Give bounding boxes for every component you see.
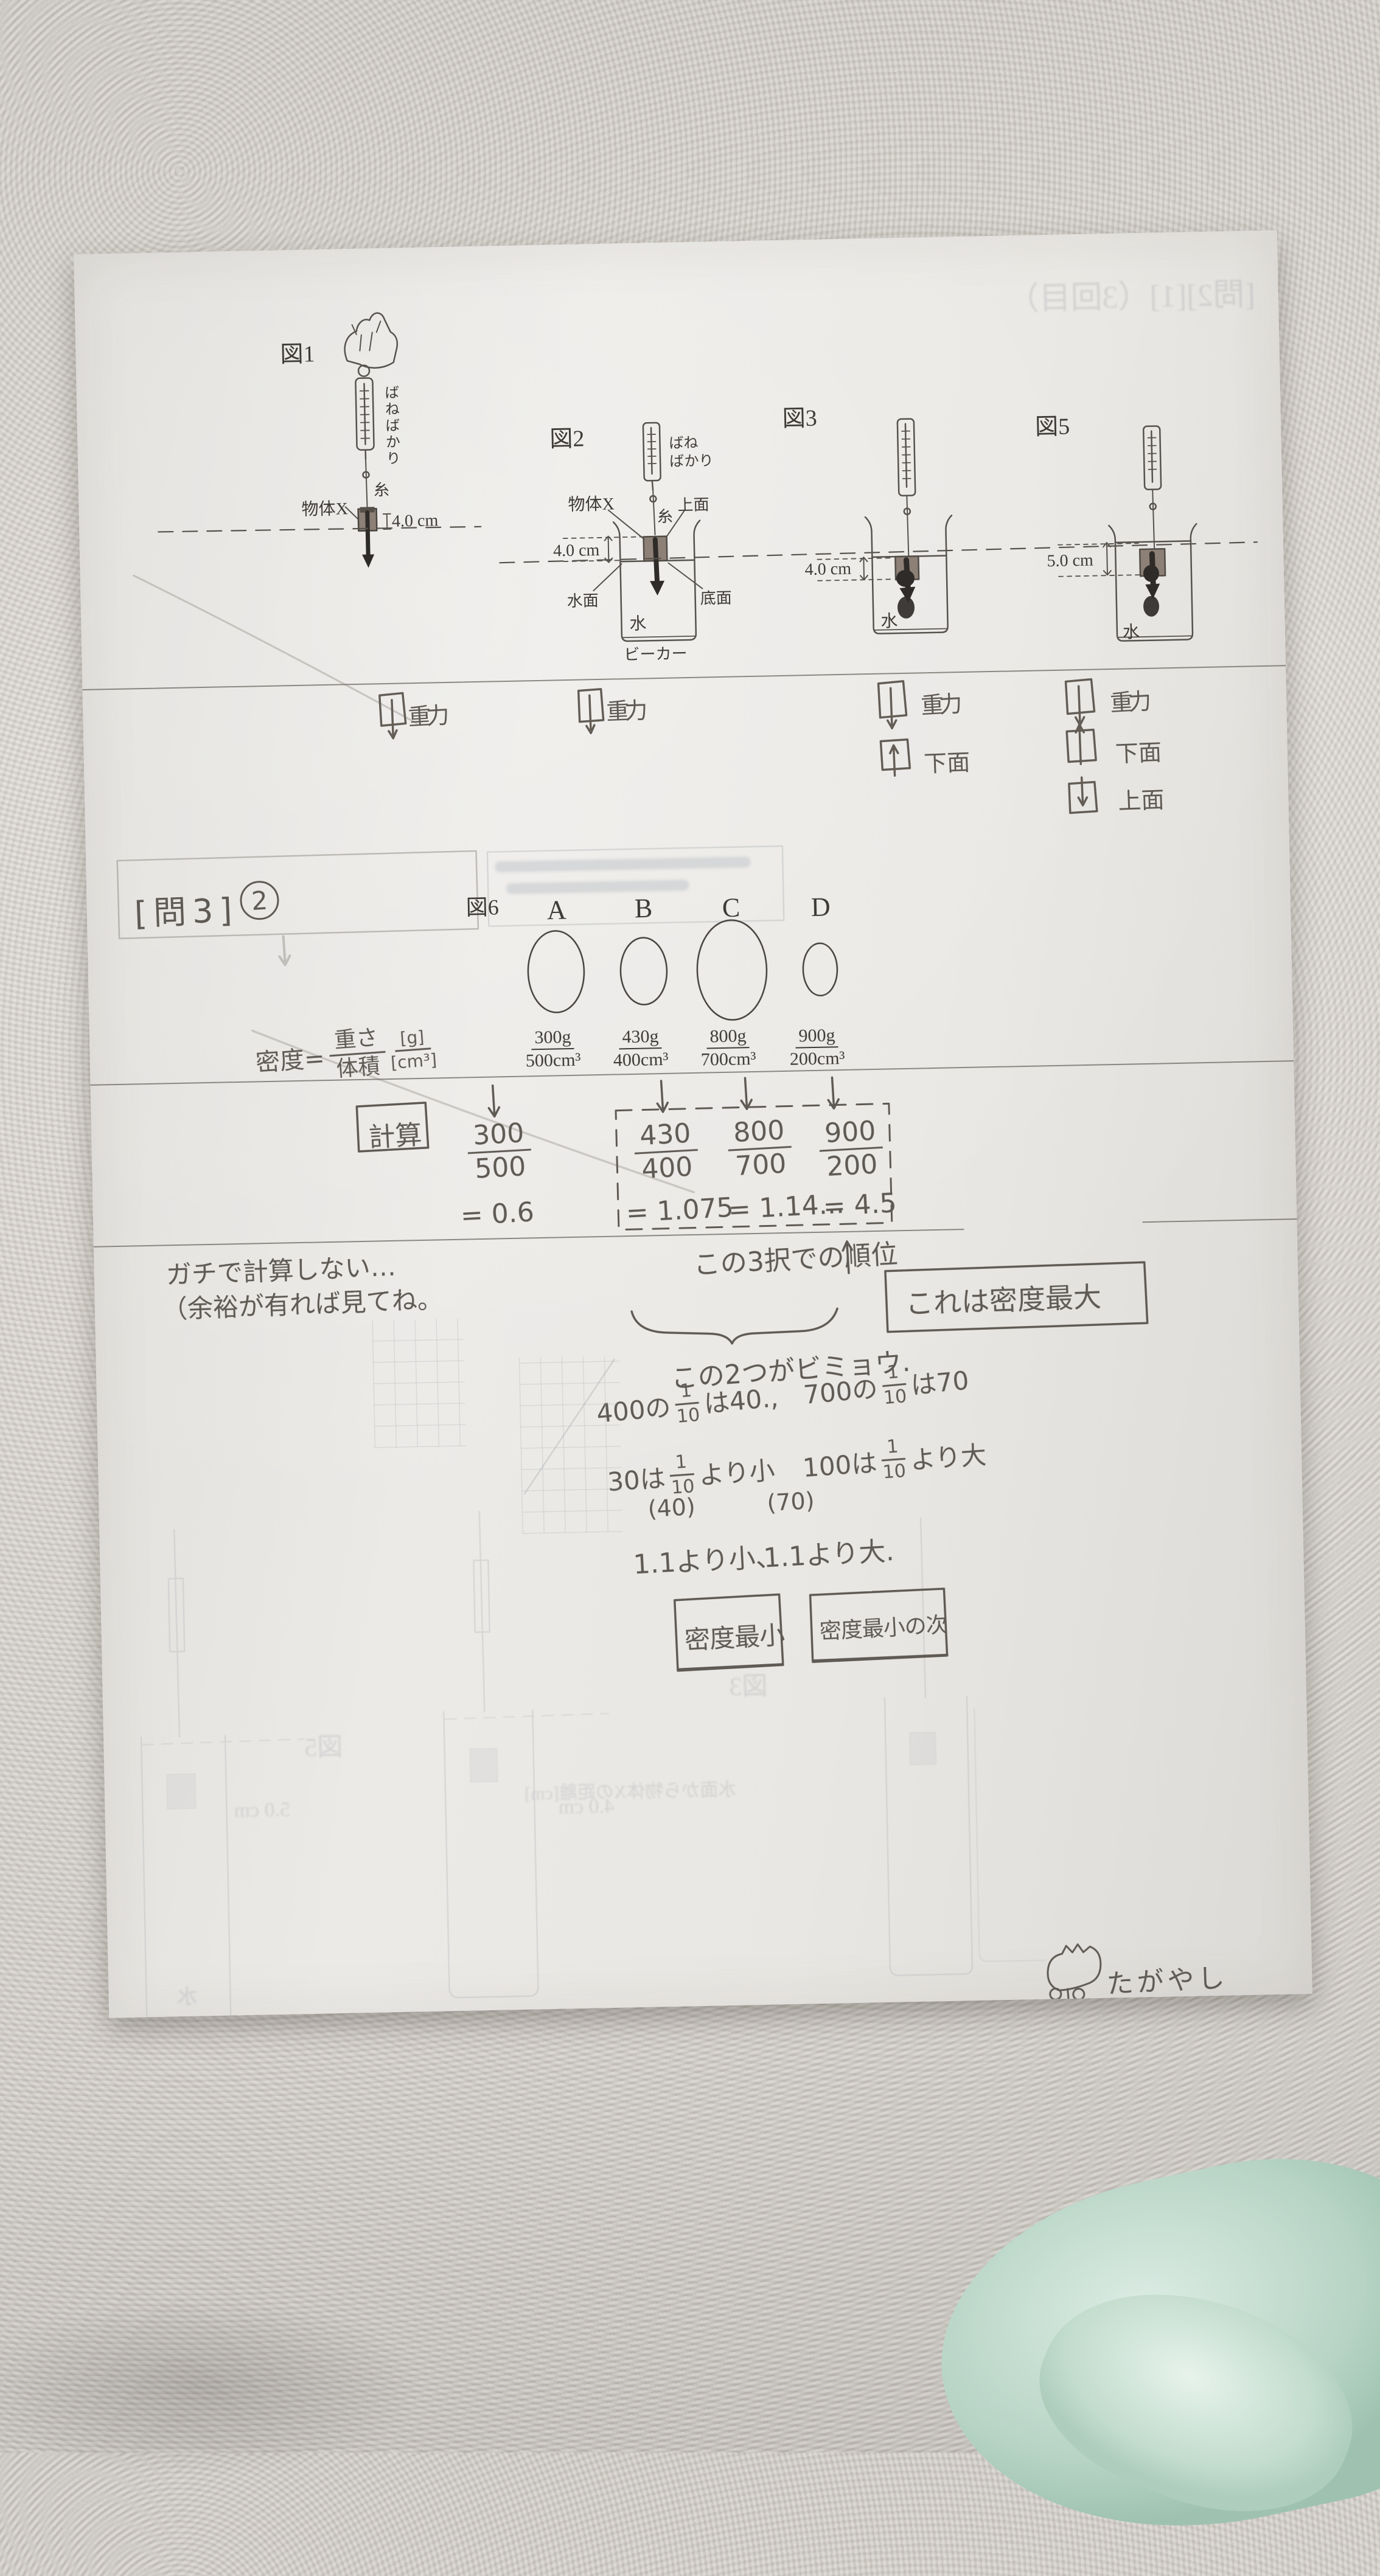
volume-value: 400cm³ [613, 1048, 669, 1070]
note-paren-40: (40) [647, 1493, 696, 1522]
frac-num: 1 [674, 1381, 699, 1406]
note-text: より小 [697, 1449, 776, 1492]
calc-denominator: 400 [641, 1151, 694, 1184]
ghost-dim5-mirror: 5.0 cm [234, 1799, 290, 1823]
mass-value: 300g [531, 1027, 574, 1050]
note-text: 100は [801, 1442, 878, 1485]
frac-num: 1 [880, 1362, 906, 1387]
formula-denominator: 体積 [335, 1053, 381, 1081]
frac-den: 10 [882, 1459, 907, 1482]
signature: たがやし [1106, 1956, 1229, 2001]
calc-numerator: 300 [466, 1119, 531, 1154]
note-text: より大 [909, 1434, 988, 1477]
mass-value: 430g [619, 1026, 662, 1049]
calc-numerator: 800 [727, 1116, 792, 1151]
formula-numerator: 重さ [327, 1026, 385, 1057]
calc-result: = 0.6 [460, 1196, 535, 1232]
calc-denominator: 700 [734, 1148, 787, 1181]
object-id-label: C [722, 892, 740, 923]
ghost-graph-grid [372, 1319, 465, 1448]
worksheet-paper: 図1 ばねばかり 糸 物体X 4.0 cm 図2 ばね ばかり 物体X 糸 上面… [74, 230, 1312, 2018]
frac-num: 1 [669, 1452, 694, 1476]
note-densest: これは密度最大 [905, 1275, 1102, 1322]
calc-result: = 4.5 [822, 1187, 897, 1223]
formula-unit-denominator: [cm³] [390, 1049, 437, 1072]
object-id-label: D [810, 891, 831, 923]
frac-den: 10 [675, 1403, 700, 1426]
note-paren-70: (70) [766, 1487, 815, 1516]
ghost-graph-grid [519, 1356, 623, 1534]
frac-den: 10 [882, 1384, 907, 1408]
mass-volume-fraction: 430g 400cm³ [613, 1026, 669, 1071]
calc-denominator: 500 [474, 1151, 527, 1184]
ghost-fig3-mirror: 図3 [729, 1665, 768, 1703]
note-text: は40., [702, 1377, 779, 1420]
volume-value: 200cm³ [790, 1047, 845, 1069]
mass-value: 800g [706, 1026, 750, 1049]
mass-volume-fraction: 900g 200cm³ [789, 1025, 845, 1069]
mass-volume-fraction: 300g 500cm³ [525, 1027, 581, 1071]
note-less-than: 1.1より小、 [632, 1535, 783, 1581]
mass-volume-fraction: 800g 700cm³ [700, 1026, 756, 1070]
calc-denominator: 200 [826, 1149, 879, 1182]
ghost-axis-mirror: 水面から物体Xの距離[cm] [524, 1774, 737, 1805]
volume-value: 700cm³ [701, 1047, 756, 1069]
mass-value: 900g [795, 1025, 838, 1048]
note-text: 700の [802, 1368, 879, 1412]
note-greater-than: 1.1より大. [762, 1529, 895, 1575]
formula-unit-numerator: [g] [394, 1028, 431, 1052]
frac-num: 1 [880, 1437, 905, 1461]
calc-numerator: 900 [818, 1117, 883, 1152]
calc-fraction: 900 200 [818, 1117, 884, 1182]
object-id-label: B [634, 892, 652, 924]
ghost-fig5-mirror: 図5 [304, 1726, 343, 1764]
circle-D [803, 943, 838, 996]
calc-fraction: 430 400 [633, 1119, 699, 1184]
towel-shadow [0, 2288, 499, 2507]
volume-value: 500cm³ [525, 1049, 580, 1071]
circle-B [620, 937, 667, 1005]
formula-label: 密度= [254, 1038, 326, 1078]
answer-min-density: 密度最小 [683, 1614, 785, 1657]
note-text: は70 [909, 1359, 971, 1401]
circle-A [528, 931, 585, 1013]
calc-numerator: 430 [633, 1119, 698, 1154]
calc-result: = 1.075 [626, 1192, 734, 1229]
ghost-water-mirror: 水 [176, 1980, 198, 2010]
object-id-label: A [546, 894, 566, 926]
circle-C [696, 920, 767, 1021]
calc-fraction: 300 500 [466, 1119, 532, 1184]
calc-label: 計算 [368, 1113, 423, 1154]
calc-fraction: 800 700 [727, 1116, 793, 1181]
